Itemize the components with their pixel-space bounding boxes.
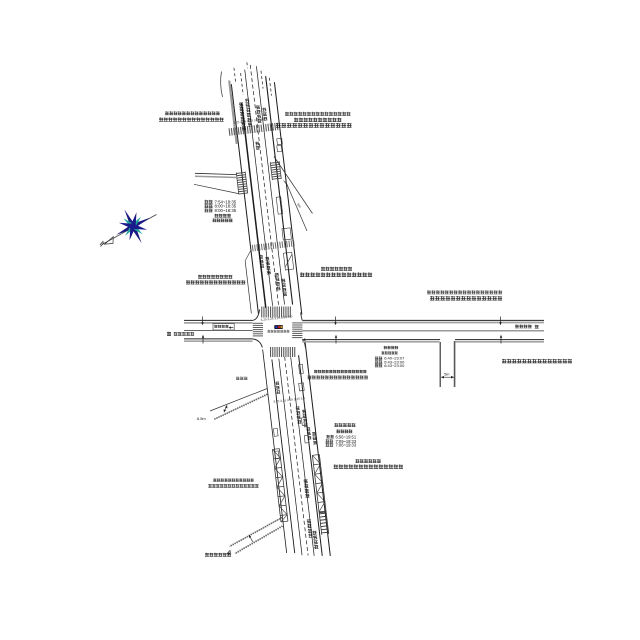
svg-text:5m: 5m [444, 373, 449, 377]
svg-text:7:06~19:33: 7:06~19:33 [336, 443, 357, 448]
svg-text:8:00~18:35: 8:00~18:35 [215, 208, 237, 213]
svg-text:6:43~23:00: 6:43~23:00 [384, 363, 405, 368]
svg-text:6.5m: 6.5m [197, 416, 206, 421]
